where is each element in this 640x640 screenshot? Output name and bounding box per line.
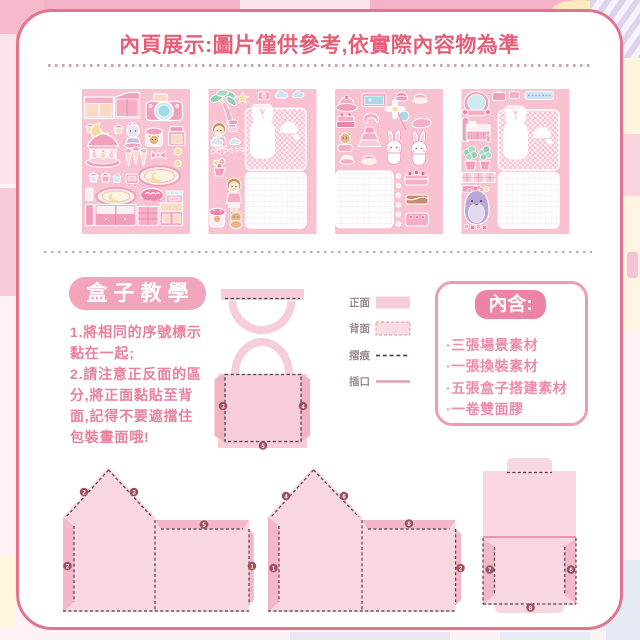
svg-text:摺痕: 摺痕 (349, 349, 370, 362)
svg-text:正面: 正面 (349, 297, 370, 309)
svg-text:插口: 插口 (349, 375, 370, 388)
svg-text:背面: 背面 (349, 322, 370, 335)
